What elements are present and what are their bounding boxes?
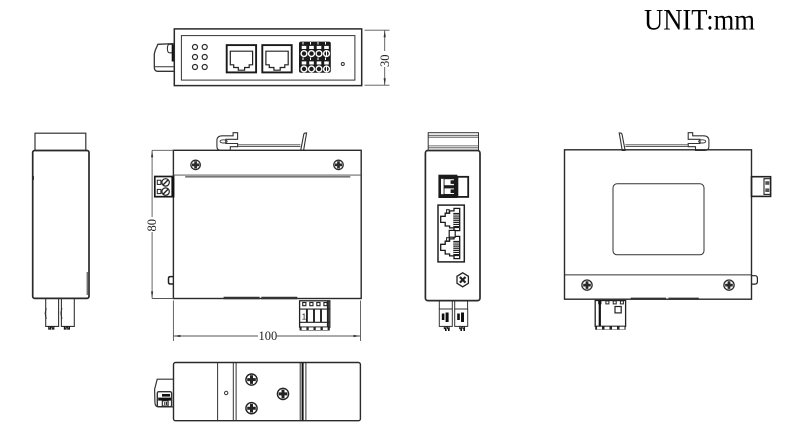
svg-text:1: 1 (302, 313, 307, 322)
svg-text:80: 80 (145, 219, 159, 232)
svg-text:30: 30 (378, 55, 392, 68)
svg-text:100: 100 (259, 329, 278, 343)
svg-text:UNIT:mm: UNIT:mm (644, 4, 755, 37)
